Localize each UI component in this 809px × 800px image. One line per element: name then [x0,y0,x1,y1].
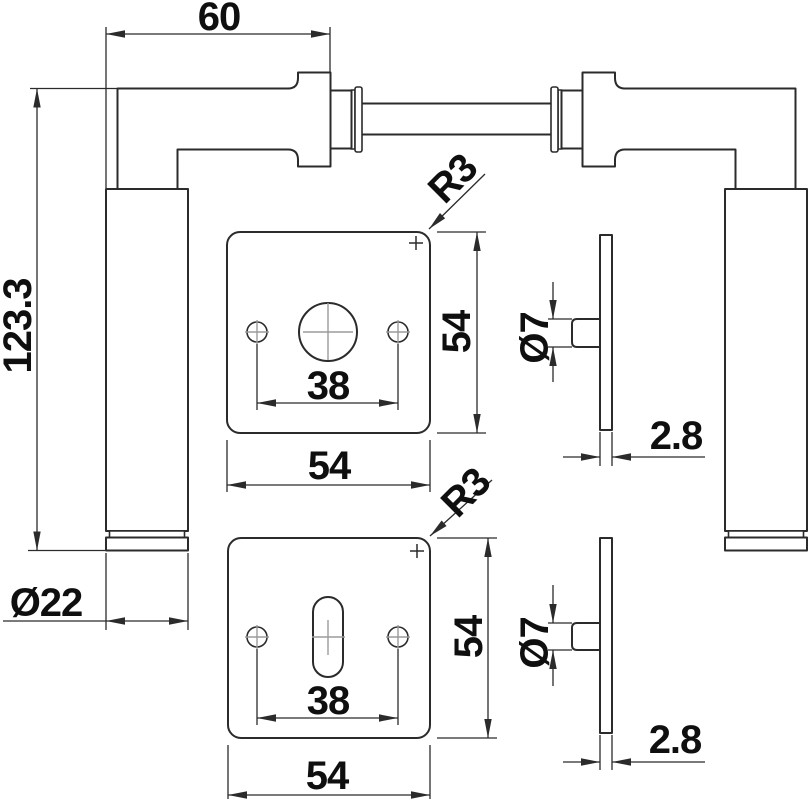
dim-handle-height-123-3: 123.3 [0,89,117,551]
right-lever-arm [583,73,796,190]
left-lever-arm [118,73,331,190]
spindle [360,104,552,135]
dim-54-height-label: 54 [435,309,479,353]
dim-o7-label: Ø7 [513,617,557,668]
dim-r3-label: R3 [433,460,499,526]
dim-r3-label: R3 [420,146,486,212]
rosette-plate-side [600,538,612,733]
technical-drawing-page: 60 123.3 Ø22 R3 38 [0,0,809,800]
left-collar-cap [355,87,362,152]
right-bearing [562,91,583,149]
right-collar-cap [551,87,558,152]
right-grip-endcap [725,538,807,551]
dim-123-3-label: 123.3 [0,278,40,373]
dim-grip-diameter-22: Ø22 [3,553,188,630]
dim-54-width-label: 54 [306,754,350,798]
dim-2-8-label: 2.8 [650,414,703,458]
rosette-side-view-top: Ø7 2.8 [513,235,705,466]
guide-pin [572,623,600,650]
guide-pin [572,319,600,347]
left-grip [106,189,188,531]
dim-38-label: 38 [307,679,350,723]
rosette-plate-side [600,235,612,430]
dim-2-8-label: 2.8 [649,718,702,762]
dim-38-label: 38 [307,364,350,408]
right-grip [725,189,807,531]
dim-o22-label: Ø22 [10,581,83,625]
dim-54-width-label: 54 [308,444,352,488]
dim-54-height-label: 54 [447,614,491,658]
door-handle-drawing: 60 123.3 Ø22 R3 38 [0,0,809,800]
rosette-side-view-bottom: Ø7 2.8 [513,538,705,770]
dim-60-label: 60 [198,0,241,39]
left-bearing [331,91,352,149]
left-grip-endcap [106,538,188,551]
dim-o7-label: Ø7 [513,312,557,363]
